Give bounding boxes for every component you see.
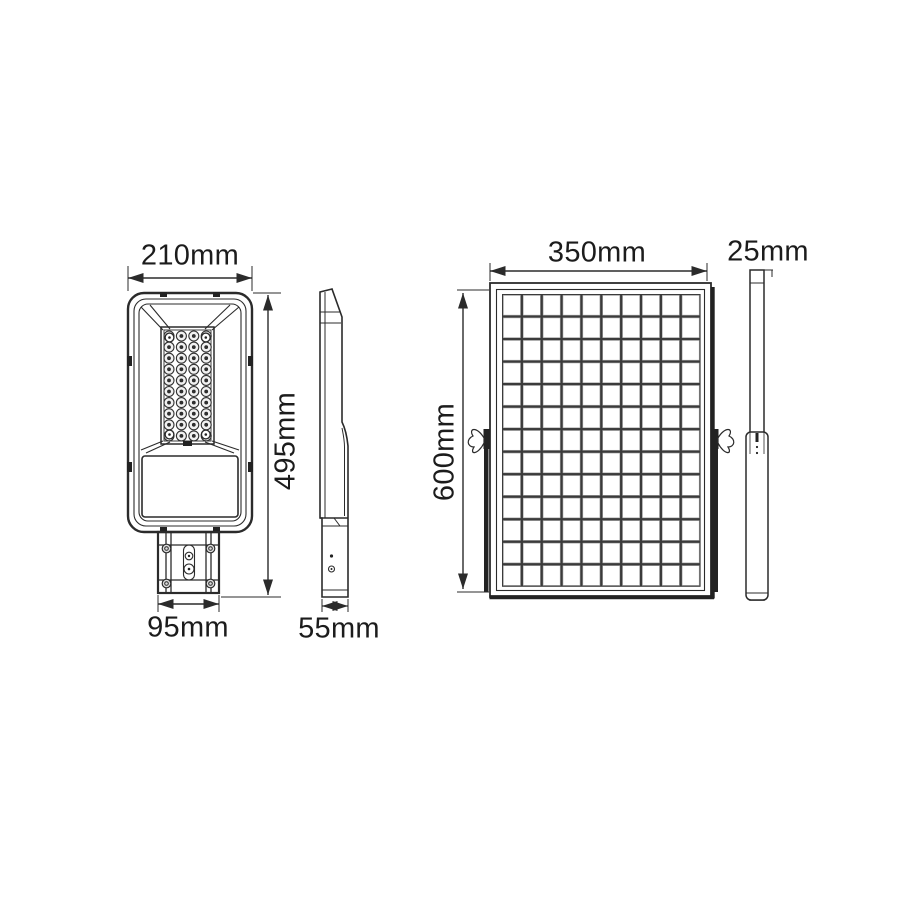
lamp-depth-label: 55mm bbox=[298, 615, 380, 644]
lamp-side-view bbox=[320, 289, 348, 597]
led-dot-center bbox=[205, 379, 208, 382]
panel-cell bbox=[543, 385, 560, 405]
panel-cell bbox=[543, 476, 560, 496]
panel-cell bbox=[503, 566, 520, 586]
panel-cell bbox=[603, 295, 620, 315]
panel-cell bbox=[603, 318, 620, 338]
panel-cell bbox=[682, 363, 699, 383]
panel-cell bbox=[503, 543, 520, 563]
panel-cell bbox=[503, 453, 520, 473]
led-dot-center bbox=[205, 412, 208, 415]
panel-cell bbox=[583, 295, 600, 315]
panel-cell bbox=[503, 295, 520, 315]
panel-cell bbox=[682, 521, 699, 541]
panel-cell bbox=[642, 431, 659, 451]
panel-cell bbox=[662, 340, 679, 360]
panel-height-label: 600mm bbox=[431, 403, 460, 501]
panel-cell bbox=[563, 385, 580, 405]
panel-cell bbox=[563, 318, 580, 338]
panel-cell bbox=[682, 408, 699, 428]
panel-cell bbox=[503, 408, 520, 428]
led-dot-center bbox=[192, 368, 195, 371]
panel-cell bbox=[682, 431, 699, 451]
led-dot-center bbox=[180, 379, 183, 382]
led-dot-center bbox=[168, 368, 171, 371]
panel-cell bbox=[623, 476, 640, 496]
led-connector-notch bbox=[183, 441, 192, 446]
led-dot-center bbox=[192, 335, 195, 338]
panel-cell bbox=[642, 521, 659, 541]
panel-cell bbox=[563, 521, 580, 541]
panel-right-bracket bbox=[712, 429, 734, 592]
panel-cell bbox=[662, 543, 679, 563]
panel-cell bbox=[623, 566, 640, 586]
panel-cell bbox=[503, 363, 520, 383]
panel-cell bbox=[563, 498, 580, 518]
panel-cell bbox=[603, 431, 620, 451]
led-dot-center bbox=[168, 412, 171, 415]
lamp-front-view bbox=[127, 292, 253, 593]
lamp-height-label: 495mm bbox=[272, 392, 301, 490]
led-dot-center bbox=[192, 423, 195, 426]
panel-cell bbox=[543, 408, 560, 428]
panel-cell bbox=[523, 363, 540, 383]
panel-cell bbox=[523, 476, 540, 496]
led-dot-center bbox=[180, 401, 183, 404]
panel-cell bbox=[642, 498, 659, 518]
panel-cell bbox=[583, 431, 600, 451]
panel-cell bbox=[523, 498, 540, 518]
lamp-side-outline bbox=[320, 289, 348, 597]
panel-cell bbox=[583, 318, 600, 338]
panel-cell bbox=[543, 521, 560, 541]
panel-cell bbox=[642, 318, 659, 338]
panel-cell bbox=[543, 340, 560, 360]
dim-95 bbox=[158, 595, 219, 612]
panel-cell bbox=[642, 408, 659, 428]
led-dot-center bbox=[180, 412, 183, 415]
dimension-drawing: 210mm 495mm 95mm 55mm 350mm 600mm 25mm bbox=[0, 0, 900, 900]
panel-cell bbox=[623, 385, 640, 405]
panel-cell bbox=[623, 318, 640, 338]
panel-cell bbox=[523, 295, 540, 315]
lamp-width-label: 210mm bbox=[141, 242, 239, 271]
panel-cell bbox=[623, 543, 640, 563]
panel-cell bbox=[583, 453, 600, 473]
led-dot-center bbox=[192, 412, 195, 415]
panel-cell bbox=[503, 476, 520, 496]
panel-cell bbox=[583, 498, 600, 518]
panel-cell bbox=[682, 453, 699, 473]
panel-cell bbox=[503, 340, 520, 360]
panel-cell bbox=[642, 363, 659, 383]
panel-cell bbox=[682, 476, 699, 496]
led-dot-center bbox=[192, 435, 195, 438]
led-dot-center bbox=[168, 423, 171, 426]
panel-cell bbox=[523, 521, 540, 541]
led-dot-center bbox=[192, 401, 195, 404]
panel-cell bbox=[603, 498, 620, 518]
led-dot-center bbox=[180, 335, 183, 338]
panel-cell bbox=[563, 295, 580, 315]
led-dot-center bbox=[205, 357, 208, 360]
panel-cell bbox=[623, 340, 640, 360]
led-dot-center bbox=[192, 357, 195, 360]
panel-cell bbox=[642, 453, 659, 473]
panel-cell bbox=[543, 498, 560, 518]
panel-cell bbox=[583, 385, 600, 405]
panel-cell bbox=[523, 431, 540, 451]
panel-cell bbox=[503, 318, 520, 338]
panel-cell bbox=[603, 453, 620, 473]
panel-cell bbox=[523, 340, 540, 360]
panel-cell bbox=[583, 363, 600, 383]
panel-depth-label: 25mm bbox=[727, 238, 809, 267]
panel-cell bbox=[583, 566, 600, 586]
panel-cell bbox=[523, 385, 540, 405]
panel-cell bbox=[583, 543, 600, 563]
panel-cell bbox=[662, 408, 679, 428]
led-dot-center bbox=[168, 379, 171, 382]
panel-cell bbox=[642, 385, 659, 405]
panel-cell bbox=[623, 521, 640, 541]
led-dot-center bbox=[180, 368, 183, 371]
panel-side-bracket bbox=[746, 432, 768, 600]
panel-cell bbox=[583, 476, 600, 496]
panel-cell bbox=[642, 340, 659, 360]
panel-cell bbox=[603, 543, 620, 563]
panel-cell bbox=[563, 566, 580, 586]
panel-cell bbox=[682, 498, 699, 518]
panel-cell bbox=[603, 408, 620, 428]
panel-cell bbox=[603, 521, 620, 541]
panel-cell bbox=[543, 295, 560, 315]
panel-cell bbox=[623, 498, 640, 518]
led-dot-center bbox=[205, 346, 208, 349]
panel-cell bbox=[563, 431, 580, 451]
panel-cell bbox=[523, 543, 540, 563]
panel-front-view bbox=[468, 283, 734, 599]
mounting-bracket bbox=[158, 532, 219, 593]
panel-cell bbox=[543, 453, 560, 473]
panel-cell bbox=[563, 363, 580, 383]
panel-cell bbox=[503, 521, 520, 541]
led-dot-center bbox=[180, 423, 183, 426]
panel-cell bbox=[503, 385, 520, 405]
panel-cell bbox=[662, 476, 679, 496]
led-dot-center bbox=[205, 401, 208, 404]
led-dot-center bbox=[168, 390, 171, 393]
panel-cell bbox=[543, 318, 560, 338]
panel-cell bbox=[623, 295, 640, 315]
led-dot-center bbox=[205, 368, 208, 371]
panel-cell bbox=[662, 318, 679, 338]
panel-cell bbox=[523, 318, 540, 338]
led-dot-center bbox=[180, 346, 183, 349]
panel-cell bbox=[563, 408, 580, 428]
panel-cell bbox=[682, 295, 699, 315]
driver-compartment bbox=[142, 456, 238, 517]
led-dot-center bbox=[168, 401, 171, 404]
panel-cell bbox=[603, 385, 620, 405]
panel-cell bbox=[503, 498, 520, 518]
panel-cell bbox=[662, 385, 679, 405]
lamp-bracket-width-label: 95mm bbox=[147, 614, 229, 643]
panel-cell bbox=[662, 498, 679, 518]
panel-cell bbox=[662, 431, 679, 451]
led-array bbox=[164, 331, 211, 441]
led-dot-center bbox=[205, 423, 208, 426]
panel-cell bbox=[563, 543, 580, 563]
panel-cell bbox=[563, 340, 580, 360]
led-dot-center bbox=[180, 390, 183, 393]
panel-cell bbox=[642, 295, 659, 315]
led-dot-center bbox=[168, 346, 171, 349]
led-dot-center bbox=[205, 390, 208, 393]
panel-cell bbox=[623, 453, 640, 473]
panel-cell bbox=[603, 363, 620, 383]
panel-left-bracket bbox=[468, 429, 490, 592]
led-dot-center bbox=[168, 357, 171, 360]
panel-cell bbox=[642, 566, 659, 586]
panel-cell bbox=[682, 566, 699, 586]
panel-cell bbox=[682, 385, 699, 405]
panel-cell bbox=[583, 340, 600, 360]
panel-cell bbox=[563, 453, 580, 473]
panel-side-view bbox=[746, 270, 773, 600]
panel-cell bbox=[543, 543, 560, 563]
panel-cell bbox=[662, 363, 679, 383]
panel-cell bbox=[583, 521, 600, 541]
panel-cell bbox=[543, 566, 560, 586]
led-dot-center bbox=[192, 346, 195, 349]
panel-cell bbox=[523, 566, 540, 586]
panel-cell bbox=[543, 431, 560, 451]
panel-cell bbox=[623, 431, 640, 451]
panel-cell bbox=[563, 476, 580, 496]
led-dot-center bbox=[180, 435, 183, 438]
panel-cell bbox=[662, 521, 679, 541]
led-dot-center bbox=[192, 390, 195, 393]
panel-cell bbox=[662, 453, 679, 473]
panel-cell bbox=[623, 363, 640, 383]
panel-cell bbox=[603, 566, 620, 586]
panel-cell bbox=[642, 543, 659, 563]
panel-cell bbox=[682, 340, 699, 360]
panel-cell bbox=[682, 543, 699, 563]
panel-cell bbox=[603, 476, 620, 496]
panel-width-label: 350mm bbox=[548, 239, 646, 268]
panel-cell bbox=[603, 340, 620, 360]
panel-cell bbox=[682, 318, 699, 338]
led-dot-center bbox=[180, 357, 183, 360]
panel-cell bbox=[583, 408, 600, 428]
panel-cell bbox=[662, 295, 679, 315]
panel-cell bbox=[623, 408, 640, 428]
panel-cell bbox=[662, 566, 679, 586]
panel-cell bbox=[523, 408, 540, 428]
panel-cell bbox=[543, 363, 560, 383]
panel-cell bbox=[503, 431, 520, 451]
dim-55 bbox=[322, 599, 348, 612]
panel-cell bbox=[523, 453, 540, 473]
led-dot-center bbox=[192, 379, 195, 382]
panel-cell bbox=[642, 476, 659, 496]
